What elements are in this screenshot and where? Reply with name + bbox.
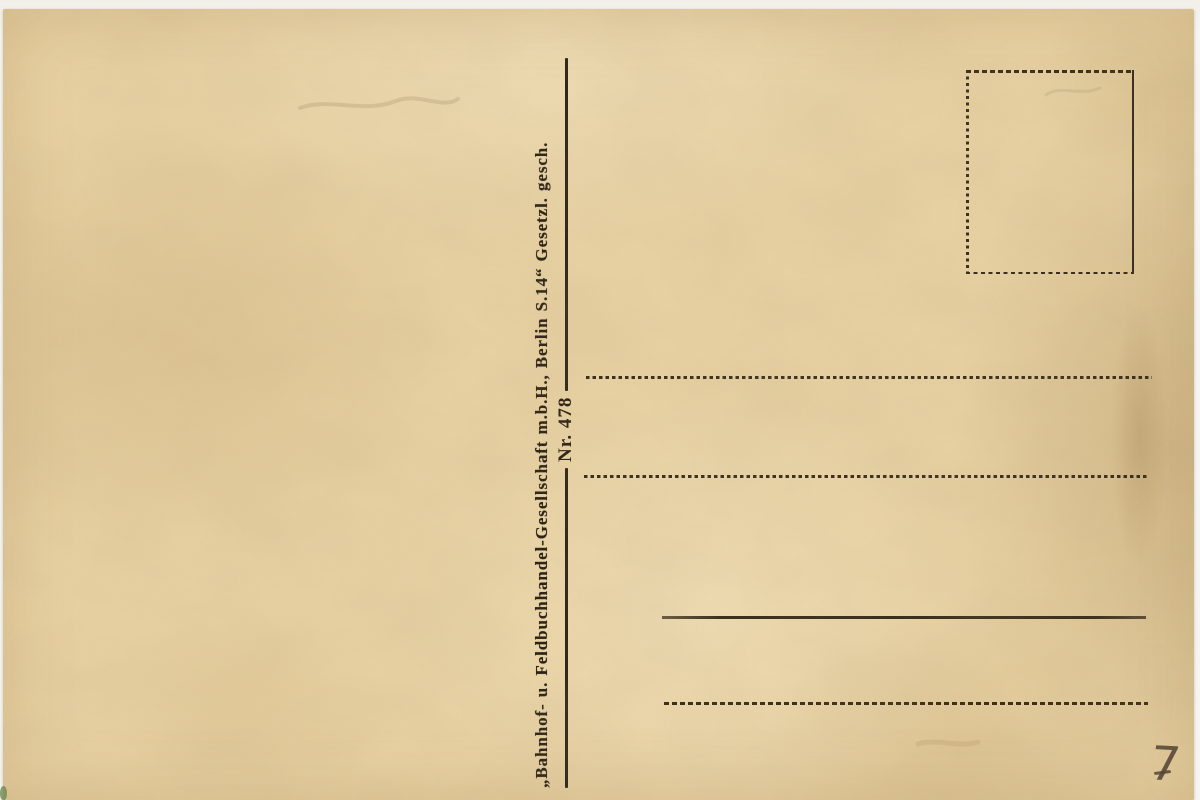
divider-rule-segment — [565, 58, 568, 391]
address-line-2 — [584, 475, 1148, 478]
series-number-label: Nr. 478 — [555, 397, 577, 462]
divider-rule-segment — [565, 468, 568, 788]
stamp-box-edge-right — [1132, 70, 1135, 274]
divider-imprint-block: „Bahnhof- u. Feldbuchhandel-Gesellschaft… — [528, 58, 582, 788]
address-line-1 — [586, 376, 1152, 379]
stamp-box-edge-bottom — [966, 272, 1134, 275]
stamp-box — [966, 70, 1134, 274]
scanned-postcard-back: „Bahnhof- u. Feldbuchhandel-Gesellschaft… — [0, 0, 1200, 800]
stamp-box-edge-top — [966, 70, 1134, 73]
green-corner-speck — [0, 786, 7, 800]
address-line-3 — [662, 616, 1146, 619]
handwritten-number: 7 — [1147, 740, 1183, 788]
stamp-box-edge-left — [966, 70, 969, 274]
address-line-4 — [664, 702, 1148, 705]
divider-rule-row: Nr. 478 — [551, 58, 581, 788]
